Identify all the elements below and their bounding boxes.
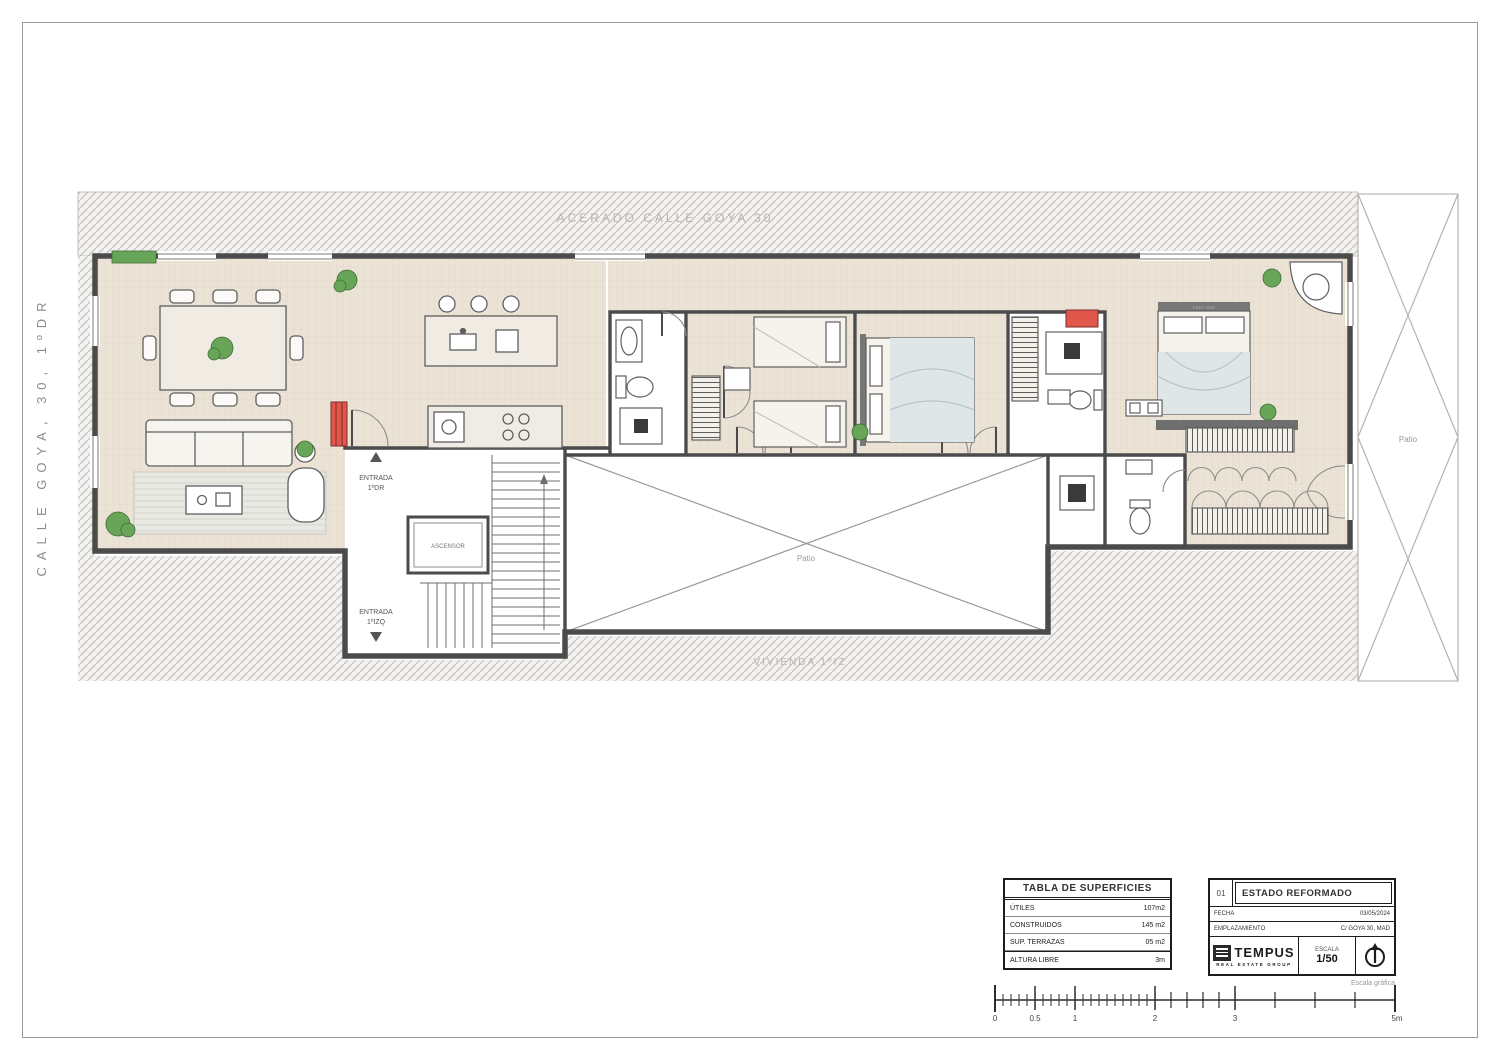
drawing-title: ESTADO REFORMADO (1235, 882, 1392, 904)
entrance-top-sub: 1ºDR (368, 485, 385, 492)
patio-center-label: Patio (797, 554, 816, 563)
sink (450, 334, 476, 350)
surface-table-title: TABLA DE SUPERFICIES (1005, 880, 1170, 900)
washbasin (616, 320, 642, 362)
scale-bar: 0 0.5 1 2 3 5m Escala gráfica (993, 980, 1403, 1023)
scale-tick-0: 0 (993, 1014, 998, 1023)
toilet (1130, 508, 1150, 534)
entrance-bottom-label: ENTRADA (359, 609, 393, 616)
surface-row-altura: ALTURA LIBRE 3m (1005, 951, 1170, 968)
scale-tick-1: 1 (1073, 1014, 1078, 1023)
logo-text: TEMPUS (1234, 945, 1294, 960)
patio-right-label: Patio (1399, 435, 1418, 444)
row-label: SUP. TERRAZAS (1010, 939, 1065, 946)
row-label: CONSTRUIDOS (1010, 922, 1062, 929)
row-value: 3m (1155, 957, 1165, 964)
wardrobe (692, 376, 720, 440)
toilet-tank (1130, 500, 1150, 508)
emplazamiento-row: EMPLAZAMIENTO C/ GOYA 30, MAD (1210, 922, 1394, 937)
surface-row-utiles: ÚTILES 107m2 (1005, 900, 1170, 917)
surface-row-terrazas: SUP. TERRAZAS 05 m2 (1005, 934, 1170, 951)
kitchen-island (425, 316, 557, 366)
entrance-top-label: ENTRADA (359, 475, 393, 482)
elevator-label: ASCENSOR (431, 544, 465, 550)
title-block: 01 ESTADO REFORMADO FECHA 03/05/2024 EMP… (1208, 878, 1396, 976)
wardrobe-1 (1186, 428, 1294, 452)
stool (503, 296, 519, 312)
sofa (146, 420, 292, 466)
pillow (1206, 317, 1244, 333)
row-value: 05 m2 (1146, 939, 1165, 946)
toilet (1069, 391, 1091, 409)
pillow (826, 322, 840, 362)
surface-table: TABLA DE SUPERFICIES ÚTILES 107m2 CONSTR… (1003, 878, 1172, 970)
washbasin (1126, 460, 1152, 474)
street-label: ACERADO CALLE GOYA 30 (557, 211, 774, 225)
nightstand (724, 368, 750, 390)
toilet-tank (1094, 390, 1102, 410)
master-bed-label: KING SIZE (1193, 305, 1215, 310)
washbasin (1048, 390, 1070, 404)
title-row: 01 ESTADO REFORMADO (1210, 880, 1394, 907)
pillow (1164, 317, 1202, 333)
emplazamiento-value: C/ GOYA 30, MAD (1341, 926, 1390, 932)
row-label: ÚTILES (1010, 905, 1035, 912)
north-cell (1356, 937, 1394, 974)
tempus-logo-icon (1213, 945, 1231, 961)
dwelling-label: VIVIENDA 1ºIZ (753, 657, 846, 668)
stool (471, 296, 487, 312)
row-value: 145 m2 (1142, 922, 1165, 929)
pillow (870, 394, 882, 434)
logo-tagline: REAL ESTATE GROUP (1216, 962, 1291, 967)
elevator: ASCENSOR (408, 517, 488, 573)
emplazamiento-label: EMPLAZAMIENTO (1214, 926, 1265, 932)
fecha-label: FECHA (1214, 911, 1234, 917)
planter (112, 251, 156, 263)
row-label: ALTURA LIBRE (1010, 957, 1059, 964)
escala-value: 1/50 (1316, 953, 1337, 965)
armchair (288, 468, 324, 522)
entrance-bottom-sub: 1ºIZQ (367, 619, 386, 626)
vanity (1126, 400, 1162, 416)
scale-caption: Escala gráfica (1351, 980, 1395, 987)
wardrobe-2 (1192, 508, 1328, 534)
wardrobe (1012, 317, 1038, 401)
toilet (627, 377, 653, 397)
pillow (870, 346, 882, 386)
radiator-red-1 (331, 402, 347, 446)
toilet-tank (616, 376, 626, 398)
drawing-sheet: CALLE GOYA, 30, 1ºDR (0, 0, 1500, 1059)
fecha-row: FECHA 03/05/2024 (1210, 907, 1394, 922)
oven (434, 412, 464, 442)
stool (439, 296, 455, 312)
scale-tick-2: 2 (1153, 1014, 1158, 1023)
coffee-table (186, 486, 242, 514)
scale-cell: ESCALA 1/50 (1299, 937, 1356, 974)
pillow (826, 406, 840, 442)
fecha-value: 03/05/2024 (1360, 911, 1390, 917)
scale-tick-3: 3 (1233, 1014, 1238, 1023)
double-bedroom (860, 334, 974, 446)
logo-cell: TEMPUS REAL ESTATE GROUP (1210, 937, 1299, 974)
north-arrow-icon (1361, 942, 1389, 970)
radiator-red-2 (1066, 310, 1098, 327)
sheet-number: 01 (1210, 880, 1233, 906)
scale-tick-05: 0.5 (1029, 1014, 1041, 1023)
row-value: 107m2 (1144, 905, 1165, 912)
surface-row-construidos: CONSTRUIDOS 145 m2 (1005, 917, 1170, 934)
scale-tick-5m: 5m (1391, 1014, 1402, 1023)
title-block-bottom: TEMPUS REAL ESTATE GROUP ESCALA 1/50 (1210, 937, 1394, 974)
